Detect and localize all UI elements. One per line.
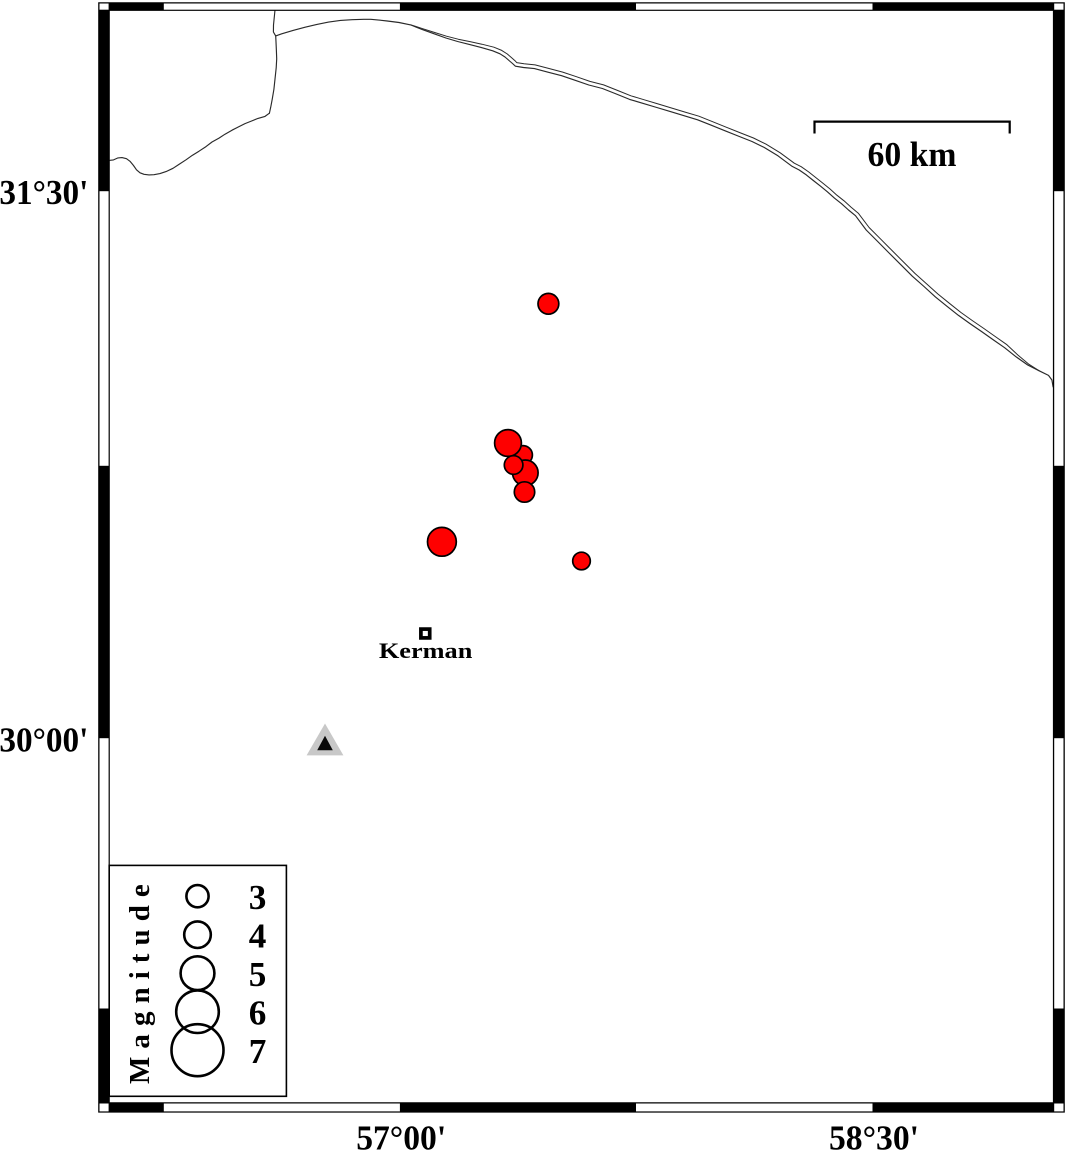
svg-text:Magnitude: Magnitude: [124, 876, 156, 1084]
svg-text:7: 7: [249, 1032, 267, 1071]
svg-text:58°30': 58°30': [829, 1118, 919, 1151]
svg-text:Kerman: Kerman: [379, 638, 473, 663]
svg-text:3: 3: [249, 878, 267, 917]
svg-text:60 km: 60 km: [868, 135, 957, 174]
svg-text:5: 5: [249, 955, 267, 994]
svg-text:4: 4: [249, 917, 267, 956]
svg-text:31°30': 31°30': [0, 173, 88, 212]
svg-text:57°00': 57°00': [356, 1118, 446, 1151]
svg-text:6: 6: [249, 994, 267, 1033]
svg-text:30°00': 30°00': [0, 720, 88, 759]
